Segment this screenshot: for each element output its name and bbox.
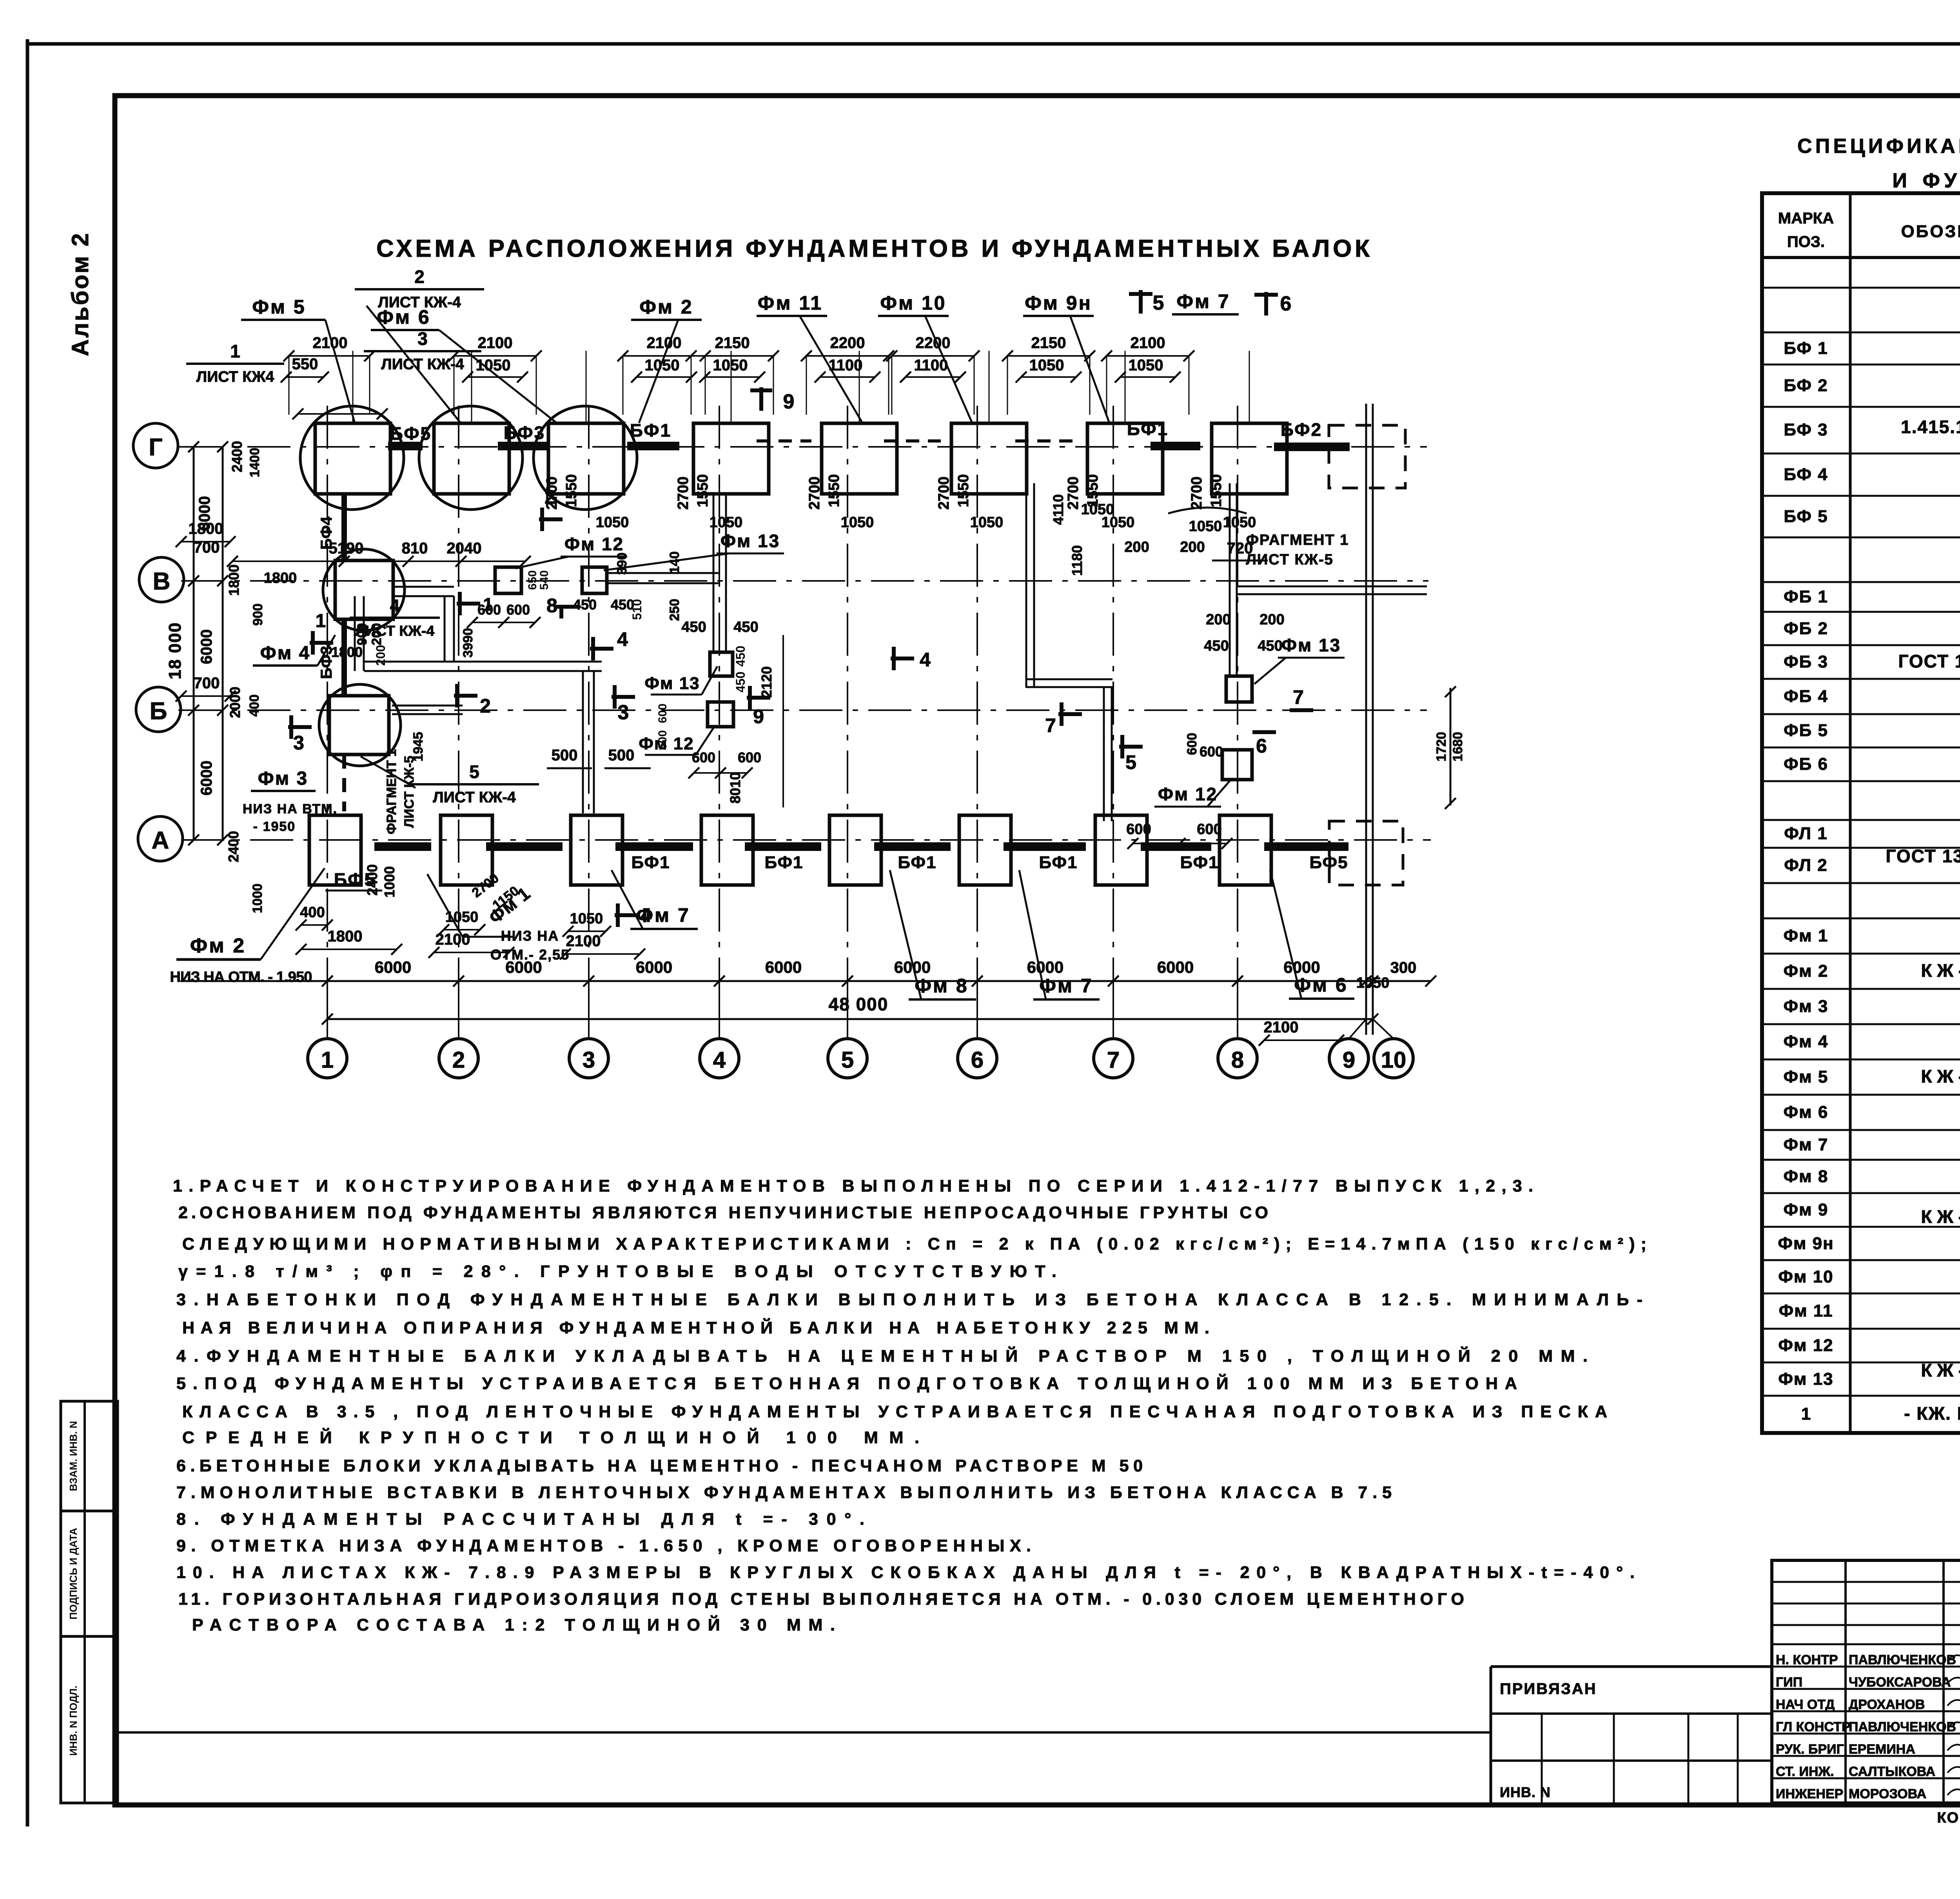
svg-text:1180: 1180: [1069, 545, 1085, 576]
svg-text:2.ОСНОВАНИЕМ ПОД ФУНДАМЕНТЫ: 2.ОСНОВАНИЕМ ПОД ФУНДАМЕНТЫ ЯВЛЯЮТСЯ НЕП…: [178, 1203, 1268, 1222]
svg-text:200: 200: [1180, 539, 1205, 555]
svg-text:Фм 7: Фм 7: [1039, 975, 1093, 997]
svg-text:БФ1: БФ1: [898, 853, 936, 872]
svg-text:ФРАГМЕНТ 1: ФРАГМЕНТ 1: [1246, 532, 1349, 548]
svg-text:Фм 9н: Фм 9н: [1025, 292, 1092, 314]
svg-text:БФ5: БФ5: [1309, 853, 1348, 872]
svg-text:ПОЗ.: ПОЗ.: [1787, 233, 1825, 250]
svg-text:ФБ 2: ФБ 2: [1784, 619, 1828, 638]
svg-text:К Ж - 8: К Ж - 8: [1921, 1066, 1960, 1086]
svg-text:ПАВЛЮЧЕНКОВ: ПАВЛЮЧЕНКОВ: [1849, 1652, 1956, 1667]
svg-text:2150: 2150: [1031, 334, 1066, 352]
svg-text:Фм 13: Фм 13: [1778, 1369, 1833, 1389]
svg-text:БФ1: БФ1: [631, 853, 670, 872]
svg-text:Фм 13: Фм 13: [644, 674, 700, 693]
svg-text:Фм 8: Фм 8: [1784, 1167, 1829, 1186]
svg-text:1945: 1945: [411, 732, 426, 762]
svg-text:1: 1: [1801, 1404, 1811, 1424]
svg-text:600: 600: [656, 730, 669, 750]
svg-text:ИНЖЕНЕР: ИНЖЕНЕР: [1776, 1787, 1843, 1801]
svg-text:600: 600: [738, 749, 761, 765]
svg-text:18 000: 18 000: [165, 622, 185, 680]
svg-text:БФ 2: БФ 2: [1784, 376, 1828, 395]
svg-text:7: 7: [1045, 715, 1056, 736]
svg-text:1550: 1550: [563, 474, 580, 508]
svg-text:6000: 6000: [894, 958, 931, 976]
svg-text:НАЧ ОТД: НАЧ ОТД: [1776, 1697, 1835, 1712]
svg-text:К Ж - 7: К Ж - 7: [1921, 960, 1960, 981]
svg-text:БФ1: БФ1: [1127, 419, 1169, 439]
svg-text:Фм 11: Фм 11: [1779, 1301, 1833, 1320]
svg-text:1100: 1100: [829, 357, 863, 374]
svg-text:1050: 1050: [1223, 514, 1256, 531]
svg-text:540: 540: [538, 570, 551, 590]
svg-text:2000: 2000: [227, 687, 243, 718]
svg-text:3990: 3990: [461, 628, 475, 658]
svg-text:Фм 10: Фм 10: [880, 292, 946, 314]
svg-text:1000: 1000: [381, 866, 397, 898]
svg-text:4: 4: [920, 649, 931, 671]
svg-text:900: 900: [250, 604, 265, 626]
svg-text:1050: 1050: [645, 357, 680, 374]
svg-text:СХЕМА РАСПОЛОЖЕНИЯ ФУНДАМЕ: СХЕМА РАСПОЛОЖЕНИЯ ФУНДАМЕНТОВ И ФУНДАМЕ…: [376, 235, 1372, 262]
svg-text:510: 510: [630, 599, 644, 620]
svg-text:4: 4: [390, 596, 400, 615]
svg-text:4: 4: [713, 1047, 726, 1073]
svg-text:8: 8: [1231, 1047, 1244, 1073]
svg-text:2400: 2400: [229, 441, 245, 472]
svg-text:ГИП: ГИП: [1776, 1675, 1802, 1690]
svg-text:2700: 2700: [675, 477, 691, 510]
svg-text:1800: 1800: [331, 644, 363, 660]
svg-text:2: 2: [452, 1047, 465, 1073]
svg-text:Фм 8: Фм 8: [915, 975, 968, 997]
svg-text:БФ1: БФ1: [630, 420, 671, 441]
svg-text:600: 600: [506, 602, 530, 618]
svg-text:450: 450: [733, 646, 748, 666]
svg-text:ПАВЛЮЧЕНКОВ: ПАВЛЮЧЕНКОВ: [1849, 1719, 1956, 1734]
svg-text:НИЗ НА ОТМ. - 1.950: НИЗ НА ОТМ. - 1.950: [170, 969, 313, 985]
svg-text:2150: 2150: [715, 334, 750, 352]
svg-text:Фм 13: Фм 13: [1281, 635, 1341, 655]
svg-text:1050: 1050: [710, 514, 743, 531]
svg-text:1550: 1550: [826, 474, 842, 508]
svg-text:БФ 5: БФ 5: [1784, 507, 1828, 526]
svg-text:ИНВ. N: ИНВ. N: [1500, 1784, 1551, 1800]
svg-text:СТ. ИНЖ.: СТ. ИНЖ.: [1776, 1764, 1834, 1779]
svg-text:3: 3: [618, 701, 629, 724]
svg-text:МАРКА: МАРКА: [1778, 210, 1834, 227]
svg-text:4: 4: [617, 628, 628, 650]
svg-text:1050: 1050: [713, 357, 748, 374]
svg-text:Б: Б: [150, 698, 167, 725]
svg-text:2: 2: [414, 267, 425, 287]
svg-text:Фм 3: Фм 3: [258, 768, 309, 789]
svg-text:К Ж - 9: К Ж - 9: [1921, 1206, 1960, 1227]
svg-text:ЛИСТ КЖ-4: ЛИСТ КЖ-4: [433, 789, 516, 806]
svg-text:1550: 1550: [1208, 474, 1225, 508]
svg-text:7: 7: [1107, 1047, 1120, 1073]
svg-text:10: 10: [1381, 1047, 1406, 1073]
svg-text:200: 200: [1259, 611, 1284, 628]
svg-text:6000: 6000: [198, 629, 215, 664]
svg-text:Фм 2: Фм 2: [1784, 961, 1829, 981]
svg-text:500: 500: [608, 747, 635, 764]
svg-text:РУК. БРИГ: РУК. БРИГ: [1776, 1742, 1844, 1757]
svg-text:1050: 1050: [596, 514, 629, 531]
svg-text:К Ж - 6: К Ж - 6: [1921, 1360, 1960, 1380]
svg-text:САЛТЫКОВА: САЛТЫКОВА: [1849, 1764, 1935, 1779]
svg-text:Фм 7: Фм 7: [636, 904, 690, 926]
svg-text:48 000: 48 000: [829, 994, 889, 1014]
svg-text:6000: 6000: [198, 761, 215, 796]
svg-text:БФ1: БФ1: [1039, 853, 1078, 872]
svg-text:СПЕЦИФИКАЦИЯ К СХЕМЕ РАС: СПЕЦИФИКАЦИЯ К СХЕМЕ РАСПОЛОЖЕНИЯ ФУНДАМ…: [1797, 135, 1960, 158]
svg-text:6000: 6000: [505, 958, 542, 976]
svg-text:6000: 6000: [1157, 958, 1194, 976]
svg-text:450: 450: [733, 671, 748, 692]
svg-text:Фм 7: Фм 7: [1784, 1135, 1829, 1154]
svg-text:1100: 1100: [914, 357, 948, 374]
svg-text:650: 650: [526, 570, 539, 590]
svg-text:5: 5: [1125, 751, 1136, 773]
svg-text:ПОДПИСЬ И ДАТА: ПОДПИСЬ И ДАТА: [67, 1528, 79, 1620]
svg-text:1: 1: [483, 594, 493, 615]
svg-text:1050: 1050: [1081, 501, 1114, 518]
svg-text:2700: 2700: [936, 477, 952, 510]
svg-text:ФБ 6: ФБ 6: [1784, 755, 1828, 774]
svg-text:Альбом 2: Альбом 2: [67, 232, 93, 356]
svg-text:Фм 10: Фм 10: [1778, 1267, 1833, 1286]
svg-text:БФ5: БФ5: [390, 423, 432, 444]
svg-text:450: 450: [573, 597, 597, 613]
svg-text:Фм 4: Фм 4: [260, 643, 311, 664]
svg-text:1.415.1- 2 вып.1: 1.415.1- 2 вып.1: [1901, 417, 1960, 437]
svg-text:600: 600: [656, 704, 669, 723]
svg-text:2200: 2200: [830, 334, 865, 352]
svg-text:БФ 1: БФ 1: [1784, 339, 1828, 358]
svg-text:1: 1: [321, 1047, 334, 1073]
svg-text:1680: 1680: [1450, 732, 1465, 762]
svg-text:600: 600: [1197, 821, 1221, 838]
svg-text:Фм 3: Фм 3: [1784, 997, 1829, 1016]
svg-text:БФ1: БФ1: [764, 853, 803, 872]
svg-text:2100: 2100: [647, 334, 682, 352]
svg-text:Фм 6: Фм 6: [1784, 1103, 1829, 1122]
svg-text:1550: 1550: [955, 474, 972, 508]
svg-text:ПРИВЯЗАН: ПРИВЯЗАН: [1500, 1680, 1597, 1698]
svg-text:200: 200: [1124, 539, 1149, 555]
svg-text:ГЛ КОНСТР: ГЛ КОНСТР: [1776, 1719, 1851, 1734]
svg-text:2100: 2100: [313, 334, 348, 352]
svg-text:ФЛ 2: ФЛ 2: [1784, 856, 1828, 875]
svg-text:450: 450: [1258, 638, 1282, 654]
svg-text:4.ФУНДАМЕНТНЫЕ БАЛКИ УКЛАДЫВ: 4.ФУНДАМЕНТНЫЕ БАЛКИ УКЛАДЫВАТЬ НА ЦЕМЕН…: [176, 1346, 1588, 1366]
svg-text:ГОСТ 13 580 - 85: ГОСТ 13 580 - 85: [1886, 846, 1960, 866]
svg-text:2400: 2400: [225, 831, 241, 862]
svg-text:1050: 1050: [841, 514, 874, 531]
svg-text:БФ2: БФ2: [1281, 419, 1322, 440]
svg-text:600: 600: [692, 749, 715, 765]
svg-text:900: 900: [355, 623, 370, 646]
svg-text:- 1950: - 1950: [253, 819, 296, 834]
svg-text:НИЗ НА ВТМ.: НИЗ НА ВТМ.: [243, 802, 338, 816]
svg-text:810: 810: [402, 540, 428, 557]
svg-text:450: 450: [733, 619, 758, 635]
svg-text:1050: 1050: [1029, 357, 1064, 374]
svg-text:Фм 5: Фм 5: [1784, 1067, 1829, 1086]
svg-text:3: 3: [293, 732, 304, 754]
svg-text:1800: 1800: [328, 928, 363, 945]
svg-text:А: А: [152, 827, 169, 854]
svg-text:ЕРЕМИНА: ЕРЕМИНА: [1849, 1742, 1915, 1757]
svg-text:3: 3: [417, 328, 428, 349]
svg-text:2700: 2700: [1065, 477, 1082, 510]
svg-text:1720: 1720: [1434, 732, 1449, 762]
svg-text:7: 7: [1293, 686, 1304, 708]
svg-text:ВЗАМ. ИНВ. N: ВЗАМ. ИНВ. N: [67, 1421, 79, 1491]
svg-text:1050: 1050: [970, 514, 1004, 531]
svg-text:500: 500: [552, 747, 578, 764]
svg-text:ОБОЗНАЧЕНИЕ: ОБОЗНАЧЕНИЕ: [1901, 222, 1960, 241]
svg-text:5: 5: [1153, 292, 1164, 314]
svg-text:600: 600: [1200, 744, 1223, 760]
svg-text:250: 250: [667, 599, 682, 621]
svg-text:2100: 2100: [1131, 334, 1165, 352]
svg-text:300: 300: [1390, 959, 1417, 976]
svg-text:6: 6: [1256, 735, 1267, 757]
svg-text:550: 550: [292, 355, 318, 373]
svg-text:1800: 1800: [226, 564, 242, 596]
svg-text:ЛИСТ КЖ4: ЛИСТ КЖ4: [196, 368, 274, 385]
svg-text:2100: 2100: [566, 932, 601, 950]
svg-text:1: 1: [316, 611, 326, 631]
svg-text:2100: 2100: [478, 334, 513, 352]
svg-text:ЛИСТ КЖ-5: ЛИСТ КЖ-5: [402, 756, 417, 828]
svg-text:Фм 5: Фм 5: [252, 296, 306, 318]
svg-text:3: 3: [583, 1047, 595, 1073]
svg-text:2: 2: [480, 695, 491, 717]
svg-text:700: 700: [194, 675, 220, 692]
svg-text:Фм 6: Фм 6: [377, 306, 430, 328]
svg-text:2120: 2120: [759, 666, 775, 698]
svg-text:1550: 1550: [695, 474, 711, 508]
svg-text:МОРОЗОВА: МОРОЗОВА: [1849, 1787, 1926, 1801]
svg-text:1050: 1050: [570, 911, 603, 927]
svg-text:БФ 4: БФ 4: [1784, 465, 1828, 484]
svg-text:2200: 2200: [916, 334, 951, 352]
svg-text:2400: 2400: [364, 864, 380, 896]
svg-text:2100: 2100: [436, 931, 470, 948]
svg-text:200: 200: [369, 623, 384, 646]
svg-text:400: 400: [300, 904, 325, 921]
svg-text:И ФУНДАМЕНТНЫХ БАЛОК: И ФУНДАМЕНТНЫХ БАЛОК: [1893, 169, 1960, 192]
svg-text:140: 140: [667, 551, 682, 574]
svg-text:9: 9: [1343, 1047, 1355, 1073]
svg-text:1050: 1050: [1129, 357, 1163, 374]
svg-text:ФЛ 1: ФЛ 1: [1784, 824, 1828, 843]
svg-text:Фм 12: Фм 12: [564, 534, 624, 554]
svg-text:390: 390: [615, 553, 630, 575]
svg-text:2700: 2700: [1189, 477, 1205, 510]
svg-text:ДРОХАНОВ: ДРОХАНОВ: [1849, 1697, 1925, 1712]
svg-text:БФ 3: БФ 3: [1784, 420, 1828, 439]
svg-text:1800: 1800: [264, 570, 297, 586]
svg-text:5: 5: [841, 1047, 854, 1073]
svg-text:6000: 6000: [765, 958, 802, 976]
svg-text:1000: 1000: [250, 883, 265, 913]
svg-text:450: 450: [681, 619, 706, 635]
svg-text:1400: 1400: [247, 448, 262, 477]
svg-text:2: 2: [544, 486, 555, 508]
svg-text:6000: 6000: [1027, 958, 1063, 976]
svg-text:200: 200: [374, 645, 388, 666]
svg-text:Фм 12: Фм 12: [1158, 784, 1218, 804]
svg-text:700: 700: [194, 539, 220, 556]
svg-text:ФБ 5: ФБ 5: [1784, 721, 1828, 740]
svg-text:Г: Г: [149, 434, 162, 461]
svg-text:ФБ 4: ФБ 4: [1784, 687, 1828, 706]
svg-text:1050: 1050: [476, 357, 511, 374]
svg-text:Фм 4: Фм 4: [1784, 1032, 1829, 1051]
svg-text:БФ1: БФ1: [1180, 853, 1219, 872]
svg-text:Фм 9н: Фм 9н: [1778, 1234, 1834, 1253]
svg-text:200: 200: [1206, 611, 1230, 628]
svg-text:ГОСТ 13 579 - 78: ГОСТ 13 579 - 78: [1898, 651, 1960, 671]
svg-text:5190: 5190: [329, 540, 364, 557]
svg-text:6: 6: [971, 1047, 984, 1073]
svg-text:Фм 13: Фм 13: [720, 531, 780, 551]
svg-text:8010: 8010: [727, 772, 743, 803]
svg-text:Фм 7: Фм 7: [1176, 290, 1230, 312]
svg-text:- КЖ. И. 61. 0. 0: - КЖ. И. 61. 0. 0: [1904, 1403, 1960, 1424]
svg-text:В: В: [153, 568, 171, 595]
svg-text:БФ3: БФ3: [504, 423, 545, 443]
svg-text:2700: 2700: [806, 477, 823, 510]
svg-text:ФРАГМЕНТ 1: ФРАГМЕНТ 1: [384, 749, 399, 834]
svg-text:6000: 6000: [375, 958, 411, 976]
svg-text:2040: 2040: [447, 540, 482, 557]
svg-text:Фм 12: Фм 12: [1778, 1336, 1833, 1355]
svg-text:1: 1: [230, 341, 240, 361]
svg-text:Фм 1: Фм 1: [1784, 926, 1829, 945]
svg-text:600: 600: [1126, 821, 1151, 838]
svg-text:5: 5: [469, 762, 479, 782]
svg-text:6: 6: [1280, 292, 1292, 315]
svg-text:Фм 2: Фм 2: [190, 934, 246, 957]
svg-text:Фм 11: Фм 11: [758, 292, 823, 314]
svg-text:9: 9: [753, 706, 764, 727]
svg-text:ФБ 1: ФБ 1: [1784, 587, 1828, 606]
svg-text:6000: 6000: [1283, 958, 1320, 976]
svg-text:НИЗ НА: НИЗ НА: [501, 928, 559, 944]
svg-text:Фм 9: Фм 9: [1784, 1200, 1829, 1219]
svg-text:400: 400: [247, 695, 262, 717]
svg-text:ФБ 3: ФБ 3: [1784, 652, 1828, 671]
svg-text:4110: 4110: [1050, 494, 1066, 525]
svg-text:2100: 2100: [1264, 1019, 1299, 1036]
svg-text:ЧУБОКСАРОВА: ЧУБОКСАРОВА: [1849, 1675, 1951, 1690]
svg-text:600: 600: [1185, 733, 1200, 755]
svg-text:6000: 6000: [636, 958, 672, 976]
svg-text:1050: 1050: [1189, 518, 1222, 535]
svg-text:КОПИРОВАЛ :: КОПИРОВАЛ :: [1937, 1810, 1960, 1826]
svg-text:Н. КОНТР: Н. КОНТР: [1776, 1652, 1838, 1667]
svg-text:1050: 1050: [445, 909, 479, 925]
svg-text:6000: 6000: [196, 496, 213, 531]
svg-text:450: 450: [1204, 638, 1229, 654]
svg-text:9: 9: [783, 390, 795, 413]
svg-text:720: 720: [1227, 540, 1253, 557]
svg-text:Фм 6: Фм 6: [1294, 974, 1348, 996]
svg-text:ИНВ. N ПОДЛ.: ИНВ. N ПОДЛ.: [67, 1685, 79, 1756]
svg-text:Фм 2: Фм 2: [639, 296, 693, 318]
